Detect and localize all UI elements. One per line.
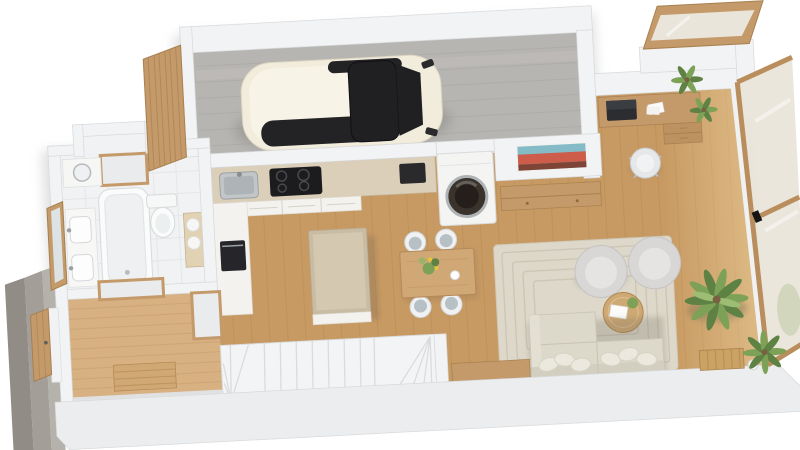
island-top <box>313 232 367 311</box>
alcove-floor <box>83 133 146 154</box>
artwork <box>516 142 587 172</box>
basin-bowl <box>73 164 91 182</box>
bathtub <box>98 187 153 289</box>
entry-hall <box>113 362 176 391</box>
open-book <box>609 305 628 320</box>
dining-chair <box>404 231 426 253</box>
front-door <box>30 308 62 383</box>
alcove-left-wall <box>73 124 85 156</box>
dining-chair <box>410 296 432 318</box>
dining-table <box>400 248 476 298</box>
sink-basin <box>224 176 255 196</box>
slatted-doormat <box>699 348 744 370</box>
laptop-screen <box>606 99 636 110</box>
towel-shelf <box>183 212 204 267</box>
double-vanity <box>65 208 99 287</box>
car <box>232 53 453 156</box>
car-roof-glass <box>348 60 400 142</box>
paper <box>646 106 659 114</box>
dining-chair <box>440 293 462 315</box>
garage-door <box>143 45 187 171</box>
sideboard <box>500 181 601 210</box>
second-basin <box>399 163 426 184</box>
hall-door-frame <box>192 292 222 339</box>
rolled-towel <box>187 236 201 250</box>
car-windshield <box>396 63 424 136</box>
washing-machine <box>437 151 497 226</box>
bath-hall-wall-a <box>67 288 99 300</box>
cooktop <box>269 166 322 197</box>
dining-chair <box>435 229 457 251</box>
cup <box>450 270 459 279</box>
shower-tray <box>100 153 148 185</box>
vanity-sink <box>69 216 91 243</box>
floorplan-render: 3D ground-floor plan render Top-down 3D … <box>0 0 800 450</box>
vanity-sink <box>71 254 93 281</box>
floorplan-stage: 3D ground-floor plan render Top-down 3D … <box>0 0 800 450</box>
bath-door-frame <box>99 278 164 299</box>
rolled-towel <box>186 218 200 232</box>
toilet-tank <box>146 194 177 209</box>
office-window <box>641 1 765 49</box>
